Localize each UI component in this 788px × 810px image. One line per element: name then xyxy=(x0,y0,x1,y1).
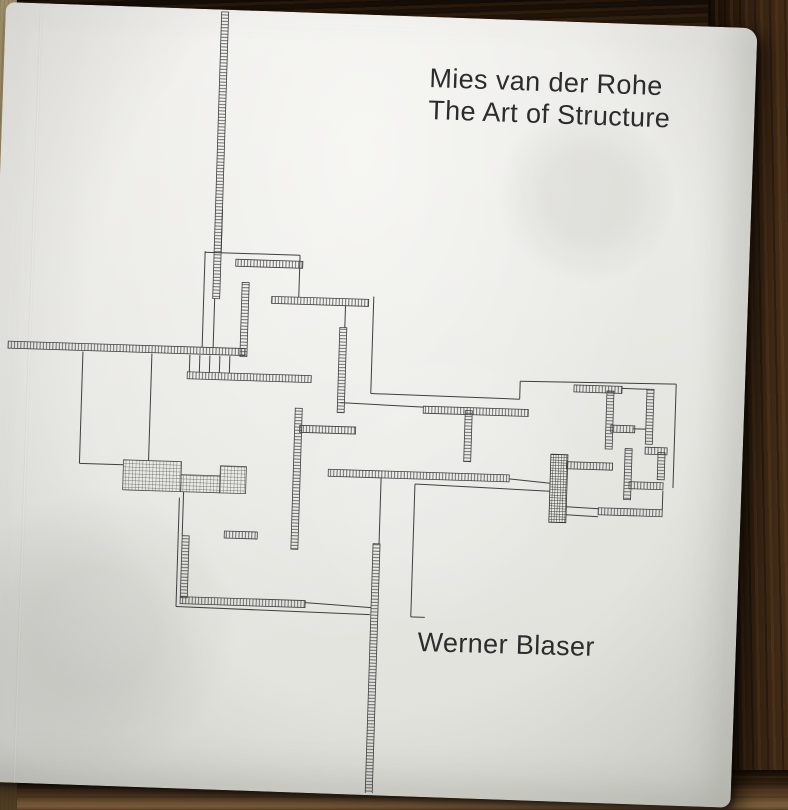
book-title: Mies van der Rohe The Art of Structure xyxy=(428,62,672,134)
author-name: Werner Blaser xyxy=(417,627,595,663)
book-cover-photo: Mies van der Rohe The Art of Structure W… xyxy=(0,0,788,810)
book-cover-print-layer: Mies van der Rohe The Art of Structure W… xyxy=(0,0,788,810)
